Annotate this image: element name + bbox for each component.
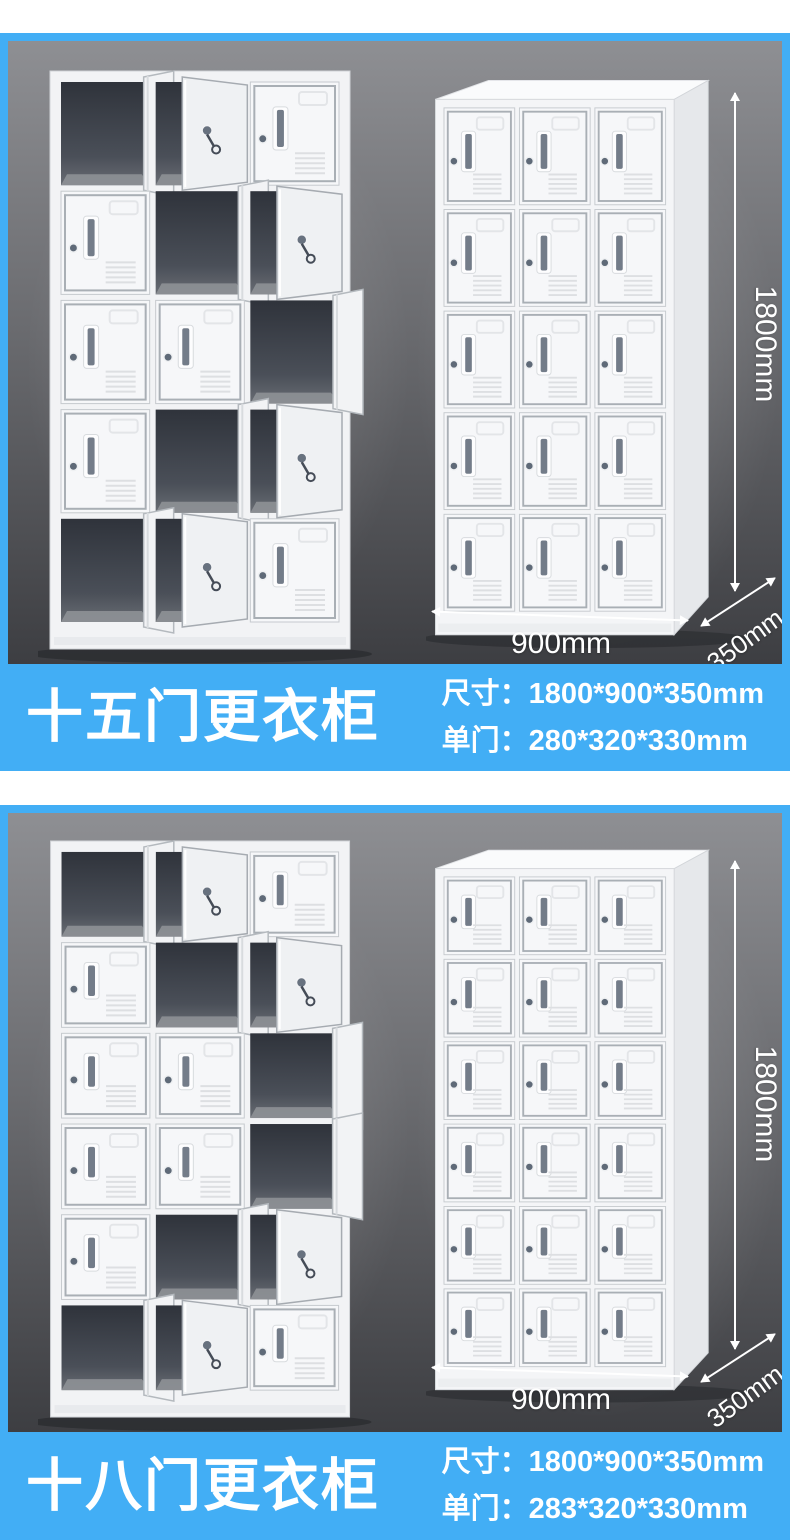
product-specs: 尺寸：1800*900*350mm 单门：283*320*330mm xyxy=(442,1439,764,1533)
spec-size-line: 尺寸：1800*900*350mm xyxy=(442,671,764,718)
product-banner: 十八门更衣柜 尺寸：1800*900*350mm 单门：283*320*330m… xyxy=(0,1432,790,1540)
product-photo-area: 1800mm 900mm 350mm xyxy=(8,813,782,1432)
closed-locker-illustration xyxy=(426,841,748,1421)
product-specs: 尺寸：1800*900*350mm 单门：280*320*330mm xyxy=(442,671,764,765)
spec-door-line: 单门：280*320*330mm xyxy=(442,718,764,765)
width-dimension-label: 900mm xyxy=(466,1383,656,1417)
height-dimension-label: 1800mm xyxy=(748,1039,782,1169)
open-locker-illustration xyxy=(38,63,398,663)
product-title: 十五门更衣柜 xyxy=(26,689,380,746)
product-card-18-door: 1800mm 900mm 350mm 十八门更衣柜 尺寸：1800*900*35… xyxy=(0,805,790,1540)
product-banner: 十五门更衣柜 尺寸：1800*900*350mm 单门：280*320*330m… xyxy=(0,664,790,771)
height-dimension-label: 1800mm xyxy=(748,279,782,409)
product-card-15-door: 1800mm 900mm 350mm 十五门更衣柜 尺寸：1800*900*35… xyxy=(0,33,790,771)
product-photo-area: 1800mm 900mm 350mm xyxy=(8,41,782,664)
width-dimension-label: 900mm xyxy=(466,627,656,661)
closed-locker-illustration xyxy=(426,71,748,664)
spec-door-line: 单门：283*320*330mm xyxy=(442,1486,764,1533)
section-divider xyxy=(0,771,790,805)
spec-size-line: 尺寸：1800*900*350mm xyxy=(442,1439,764,1486)
page-top-margin xyxy=(0,0,790,33)
height-dimension-arrow xyxy=(734,861,736,1349)
open-locker-illustration xyxy=(38,833,398,1431)
product-title: 十八门更衣柜 xyxy=(26,1458,380,1515)
height-dimension-arrow xyxy=(734,93,736,591)
